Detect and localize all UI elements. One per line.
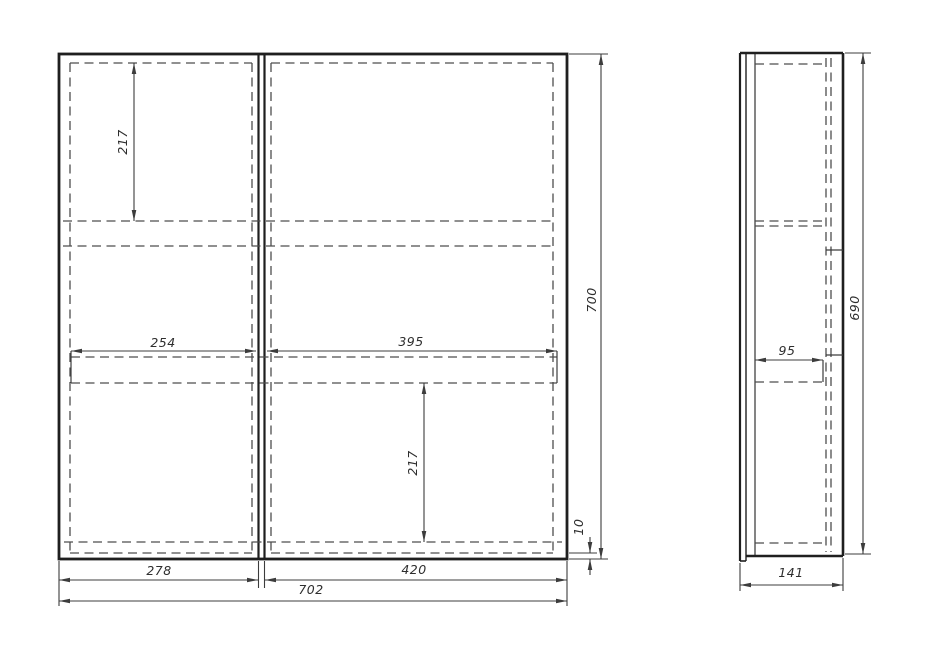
side-hidden-edges — [755, 58, 831, 552]
front-dimension-lines — [59, 54, 608, 606]
dim-label-front-left-door-width: 278 — [146, 565, 171, 578]
dim-label-front-overall-width: 702 — [298, 584, 323, 597]
side-dimension-lines — [740, 53, 871, 591]
dim-label-front-bottom-shelf-offset: 217 — [407, 450, 420, 475]
side-view — [740, 53, 871, 591]
front-door-hidden-edges — [64, 63, 562, 553]
front-shelf-hidden-edges — [63, 221, 557, 383]
dim-label-front-bottom-gap: 10 — [573, 519, 586, 536]
drawing-sheet: 217 254 395 217 700 10 278 420 702 95 69… — [0, 0, 937, 649]
dim-label-front-left-shelf-width: 254 — [150, 337, 175, 350]
dim-label-front-right-door-width: 420 — [401, 564, 426, 577]
dim-label-side-overall-depth: 141 — [778, 567, 803, 580]
dim-label-front-top-shelf-offset: 217 — [117, 129, 130, 154]
front-carcass-outline — [59, 54, 567, 559]
dim-label-front-right-shelf-width: 395 — [398, 336, 423, 349]
side-outline — [740, 53, 843, 561]
front-view — [59, 54, 608, 606]
front-dimension-arrows — [59, 54, 603, 603]
front-shelf-end-caps — [71, 351, 557, 383]
dim-label-side-shelf-depth: 95 — [779, 345, 796, 358]
dim-label-side-overall-height: 690 — [849, 295, 862, 320]
drawing-canvas — [0, 0, 937, 649]
dim-label-front-overall-height: 700 — [586, 287, 599, 312]
